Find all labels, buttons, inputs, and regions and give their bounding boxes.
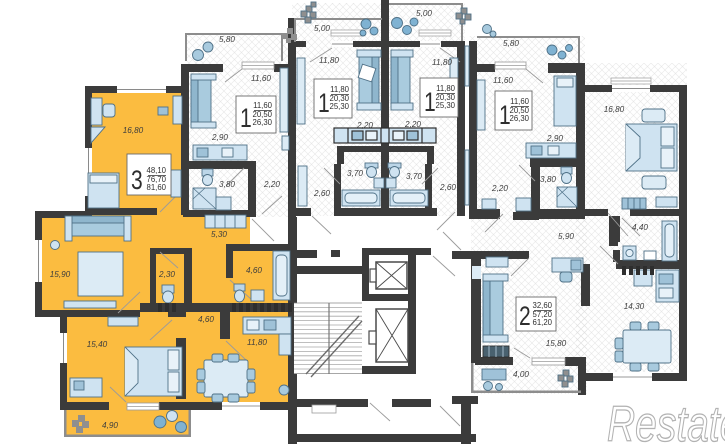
svg-text:1: 1 [424,88,436,118]
svg-text:16,80: 16,80 [123,126,144,135]
svg-text:2,90: 2,90 [211,133,228,142]
svg-text:11,60: 11,60 [493,76,513,85]
svg-text:4,00: 4,00 [513,370,529,379]
svg-text:5,90: 5,90 [558,232,574,241]
svg-text:61,20: 61,20 [532,318,552,327]
svg-text:5,30: 5,30 [211,230,227,239]
svg-text:4,90: 4,90 [102,421,118,430]
svg-text:2: 2 [519,302,531,332]
svg-text:1: 1 [240,104,252,134]
svg-text:11,80: 11,80 [330,85,350,94]
svg-text:32,60: 32,60 [532,301,552,310]
svg-text:11,60: 11,60 [253,101,273,110]
svg-text:3,70: 3,70 [406,172,422,181]
svg-text:2,20: 2,20 [491,184,508,193]
svg-text:16,80: 16,80 [604,105,625,114]
svg-text:25,30: 25,30 [329,102,349,111]
svg-text:11,80: 11,80 [436,84,456,93]
svg-text:1: 1 [318,89,330,119]
svg-text:11,80: 11,80 [432,58,452,67]
svg-text:4,60: 4,60 [198,315,214,324]
svg-text:5,00: 5,00 [314,24,330,33]
svg-text:2,20: 2,20 [356,121,373,130]
svg-text:11,80: 11,80 [247,338,267,347]
svg-text:2,60: 2,60 [313,189,330,198]
svg-text:11,60: 11,60 [251,74,271,83]
svg-text:25,30: 25,30 [435,101,455,110]
svg-text:14,30: 14,30 [624,302,645,311]
svg-text:48,10: 48,10 [146,166,166,175]
svg-text:26,30: 26,30 [509,114,529,123]
svg-text:15,40: 15,40 [87,340,108,349]
svg-text:81,60: 81,60 [146,183,166,192]
svg-text:2,20: 2,20 [263,180,280,189]
svg-text:2,20: 2,20 [404,120,421,129]
svg-text:5,80: 5,80 [219,35,235,44]
svg-text:15,90: 15,90 [50,270,71,279]
svg-text:2,90: 2,90 [546,134,563,143]
svg-text:11,80: 11,80 [319,56,339,65]
svg-text:3: 3 [131,166,143,196]
svg-text:5,00: 5,00 [416,9,432,18]
svg-text:5,80: 5,80 [503,39,519,48]
svg-text:4,60: 4,60 [246,266,262,275]
svg-text:15,80: 15,80 [546,339,567,348]
svg-text:3,70: 3,70 [347,169,363,178]
svg-text:3,80: 3,80 [540,175,556,184]
svg-text:2,60: 2,60 [439,183,456,192]
svg-text:3,80: 3,80 [219,180,235,189]
svg-text:4,40: 4,40 [632,223,648,232]
svg-text:26,30: 26,30 [252,118,272,127]
svg-text:11,60: 11,60 [510,97,530,106]
svg-text:2,30: 2,30 [158,270,175,279]
svg-text:Restate: Restate [607,395,725,444]
